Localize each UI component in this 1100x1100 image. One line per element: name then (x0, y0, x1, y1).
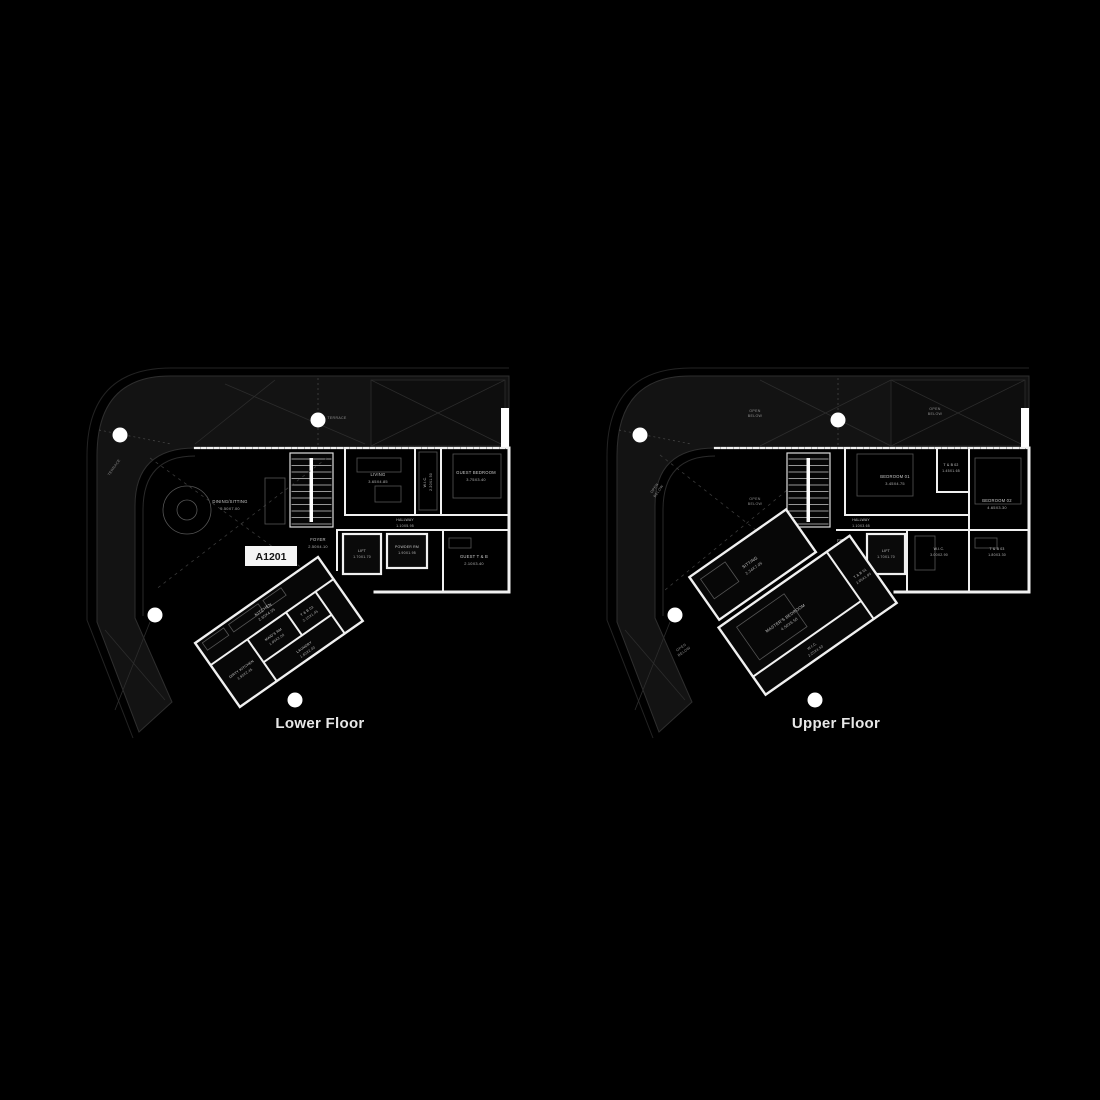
lower-floor-plan: TERRACE TERRACE (75, 360, 545, 750)
lift-shaft (343, 534, 381, 574)
wardrobe-furniture (419, 452, 437, 510)
round-sofa-furniture (163, 486, 211, 534)
upper-floor-plan: OPEN BELOW OPEN BELOW OPEN BELOW OPEN BE… (595, 360, 1065, 750)
room-dim: 2.20X1.50 (429, 473, 433, 491)
unit-perimeter-wall (895, 448, 1029, 592)
room-label: POWDER RM (395, 545, 419, 549)
column-marker (148, 608, 163, 623)
room-label: HALLWAY (396, 518, 414, 522)
room-label: W.I.C. (934, 547, 945, 551)
room-dim: 1.80X3.30 (988, 553, 1006, 557)
stair-rail (310, 458, 314, 522)
page-background: TERRACE TERRACE (0, 0, 1100, 1100)
column-marker (633, 428, 648, 443)
plan-title: Upper Floor (792, 715, 880, 732)
room-label: DINING/SITTING (212, 499, 247, 504)
service-wing-group: KITCHEN 2.65X4.55 DIRTY KITCHEN 3.90X2.4… (195, 557, 363, 707)
room-dim: 4.65X3.30 (987, 505, 1007, 510)
guest-bed-furniture (453, 454, 501, 498)
room-dim: 1.45X1.65 (942, 469, 960, 473)
room-label: GUEST BEDROOM (456, 470, 496, 475)
room-dim: 1.90X1.95 (398, 551, 416, 555)
open-below-label: OPEN (749, 409, 760, 413)
room-dim: 3.45X4.75 (885, 481, 905, 486)
dining-table-furniture (265, 478, 285, 524)
room-dim: 2.50X4.10 (308, 544, 328, 549)
column-marker (831, 413, 846, 428)
terrace-label: TERRACE (327, 416, 347, 420)
room-label: BEDROOM 01 (880, 474, 910, 479)
open-below-label: BELOW (748, 502, 763, 506)
open-below-label: OPEN (929, 407, 940, 411)
open-below-label: OPEN (749, 497, 760, 501)
room-dim: 3.00X2.90 (930, 553, 948, 557)
unit-tag-label: A1201 (256, 551, 287, 563)
column-marker (288, 693, 303, 708)
coffee-table-furniture (375, 486, 401, 502)
room-dim: 1.10X3.65 (852, 524, 870, 528)
column-marker (808, 693, 823, 708)
room-dim: 1.70X1.70 (353, 555, 371, 559)
room-dim: 5.50X7.00 (220, 506, 240, 511)
terrace-inner-line (143, 456, 195, 616)
column-marker (311, 413, 326, 428)
room-label: LIFT (358, 549, 367, 553)
open-below-label: BELOW (928, 412, 943, 416)
lower-floor-drawing: TERRACE TERRACE (75, 360, 545, 750)
column-marker (668, 608, 683, 623)
room-label: GUEST T & B (460, 554, 488, 559)
edge-column-wall (1021, 408, 1029, 448)
room-label: T & B 02 (943, 463, 958, 467)
room-label: HALLWAY (852, 518, 870, 522)
round-table-furniture (177, 500, 197, 520)
stair-rail (807, 458, 811, 522)
room-label: T & B 03 (989, 547, 1004, 551)
room-label: BEDROOM 02 (982, 498, 1012, 503)
room-dim: 1.10X5.95 (396, 524, 414, 528)
room-dim: 1.70X1.70 (877, 555, 895, 559)
room-dim: 3.75X3.40 (466, 477, 486, 482)
sofa-furniture (357, 458, 401, 472)
open-below-label: BELOW (748, 414, 763, 418)
bathtub-furniture (449, 538, 471, 548)
wic-label-group: W.I.C. 2.20X1.50 (423, 473, 433, 491)
upper-floor-drawing: OPEN BELOW OPEN BELOW OPEN BELOW OPEN BE… (595, 360, 1065, 750)
plan-title: Lower Floor (275, 715, 364, 732)
room-dim: 3.65X4.85 (368, 479, 388, 484)
room-dim: 2.10X3.40 (464, 561, 484, 566)
room-label: LIFT (882, 549, 891, 553)
room-label: FOYER (310, 537, 325, 542)
room-label: LIVING (371, 472, 386, 477)
open-below-label-group: OPEN BELOW (674, 642, 691, 658)
column-marker (113, 428, 128, 443)
edge-column-wall (501, 408, 509, 448)
room-label: W.I.C. (423, 477, 427, 488)
